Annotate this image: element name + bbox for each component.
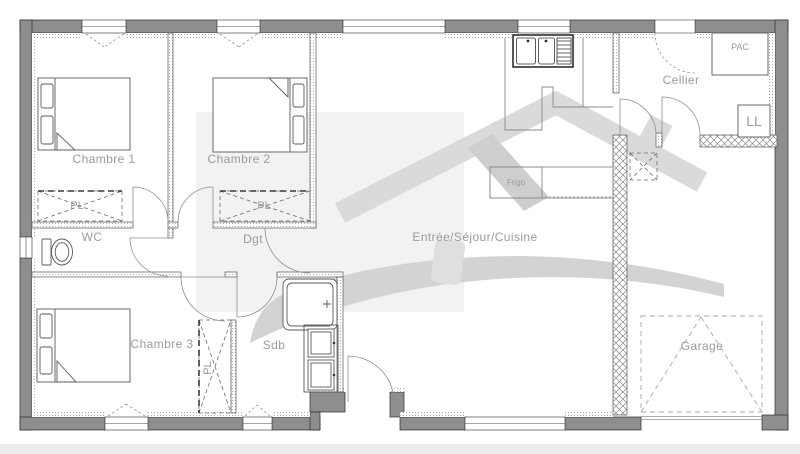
room-label-wc: WC: [82, 230, 103, 244]
room-label-sdb: Sdb: [263, 338, 286, 352]
wall-pl3-sdb: [231, 320, 236, 413]
wall-wc-dgt: [168, 228, 173, 238]
wall-sejour-garage: [613, 135, 627, 415]
toilet: [42, 239, 73, 265]
bed-chambre2: [213, 78, 307, 152]
room-label-chambre-2: Chambre 2: [208, 152, 271, 166]
room-label-cellier: Cellier: [663, 73, 700, 87]
wall-kitchen-cellier: [613, 33, 619, 93]
room-garage-area: [628, 150, 774, 413]
shower: [283, 279, 337, 330]
porch-wall-left: [310, 392, 345, 412]
heat-pump-box: [712, 33, 768, 75]
room-sejour-area: [321, 38, 611, 413]
window-sdb: [243, 405, 272, 430]
closet-label-pl2: PL: [257, 200, 270, 212]
window-sejour-bay: [343, 20, 445, 33]
window-kitchen: [518, 20, 570, 33]
bed-chambre3: [37, 309, 130, 382]
room-dgt-area: [173, 228, 310, 272]
room-label-garage: Garage: [681, 339, 723, 353]
kitchen-sink: [513, 35, 573, 67]
closet-label-pl3: PL: [202, 361, 214, 374]
window-sejour-south: [465, 417, 565, 430]
heat-pump-label: PAC: [731, 42, 749, 52]
floor-plan-page: Chambre 1 Chambre 2 Chambre 3 WC Dgt Sdb…: [0, 0, 800, 454]
porch-step: [310, 412, 320, 430]
closet-label-pl1: PL: [70, 200, 83, 212]
room-label-chambre-3: Chambre 3: [131, 337, 194, 351]
room-label-sejour: Entrée/Séjour/Cuisine: [412, 230, 537, 244]
room-areas: [32, 38, 774, 413]
wall-ch2-sejour: [310, 33, 316, 228]
room-label-dgt: Dgt: [243, 232, 263, 246]
bed-chambre1: [38, 78, 130, 150]
fridge-label: Frigo: [507, 178, 526, 187]
room-label-chambre-1: Chambre 1: [73, 152, 136, 166]
floor-plan-svg: Chambre 1 Chambre 2 Chambre 3 WC Dgt Sdb…: [0, 0, 800, 454]
wall-cellier-stub: [656, 133, 662, 147]
window-wc: [20, 237, 32, 258]
washer-label: LL: [746, 113, 762, 129]
wall-ch1-ch2: [168, 33, 173, 222]
page-footer-strip: [0, 444, 800, 454]
